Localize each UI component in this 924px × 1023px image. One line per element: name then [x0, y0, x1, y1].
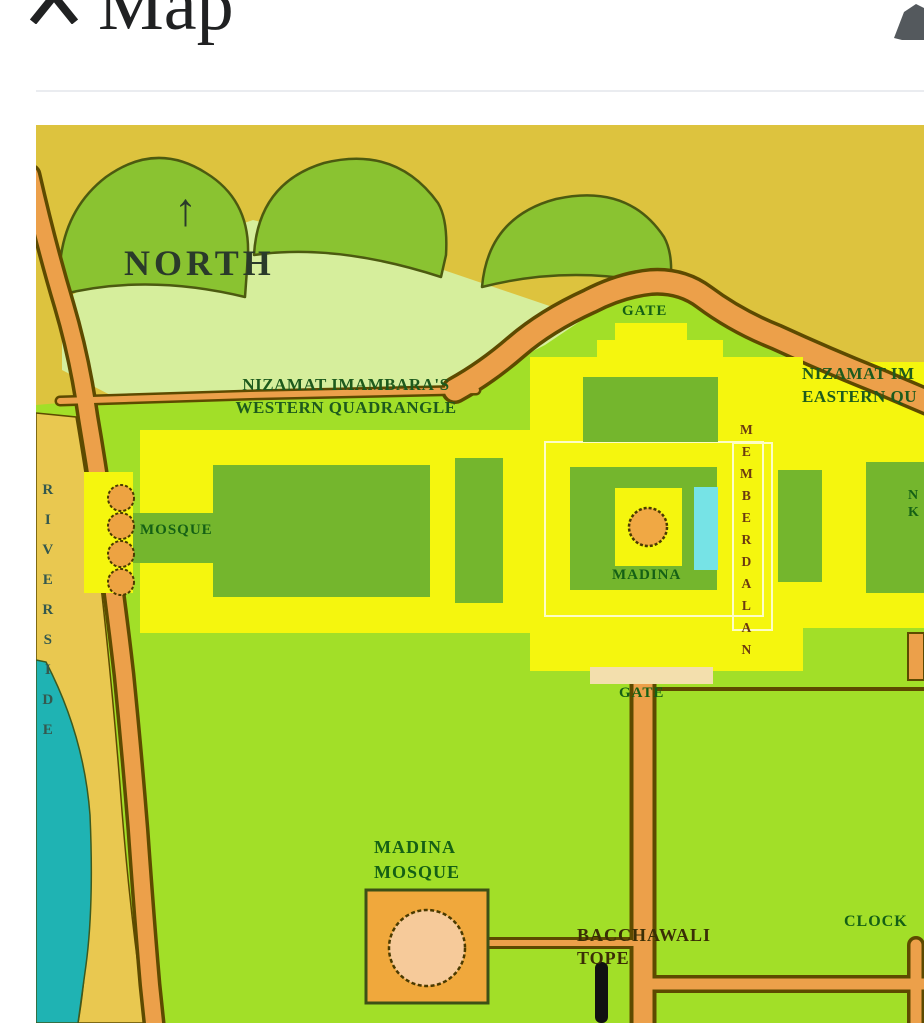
gate-middle-label: GATE [619, 684, 664, 703]
gate-top-label: GATE [622, 302, 667, 321]
western-quadrangle-label-line1: NIZAMAT IMAMBARA'S [166, 374, 526, 395]
chevron-up-icon[interactable] [28, 0, 80, 24]
edit-pencil-icon[interactable] [892, 4, 924, 44]
western-quadrangle-label-line2: WESTERN QUADRANGLE [166, 397, 526, 418]
clock-label: CLOCK [844, 912, 908, 932]
riverside-label: RIVERSIDE [38, 482, 57, 752]
section-divider [36, 90, 924, 92]
eastern-quadrangle-label-line1: NIZAMAT IM [802, 363, 915, 384]
north-label: NORTH [124, 241, 275, 286]
bacchawali-tope-cannon [595, 962, 608, 1023]
bacchawali-tope-label: BACCHAWALI TOPE [577, 924, 711, 970]
madina-dome [629, 508, 667, 546]
memberdalan-label: MEMBERDALAN [737, 422, 754, 664]
mosque-label: MOSQUE [140, 521, 213, 540]
eastern-gate-block [908, 633, 924, 680]
naubat-khana-label: N K [908, 487, 919, 521]
eastern-quadrangle-label-line2: EASTERN QU [802, 386, 917, 407]
south-gate-structure [590, 667, 713, 684]
water-tank [694, 487, 718, 570]
madina-label: MADINA [612, 566, 681, 585]
page-title: Map [98, 0, 234, 42]
madina-mosque-dome [389, 910, 465, 986]
section-header[interactable]: Map [0, 0, 924, 92]
site-map-image[interactable]: ↑ NORTH GATE NIZAMAT IMAMBARA'S WESTERN … [36, 125, 924, 1023]
madina-mosque-label: MADINA MOSQUE [374, 835, 460, 885]
north-arrow: ↑ [174, 187, 197, 233]
